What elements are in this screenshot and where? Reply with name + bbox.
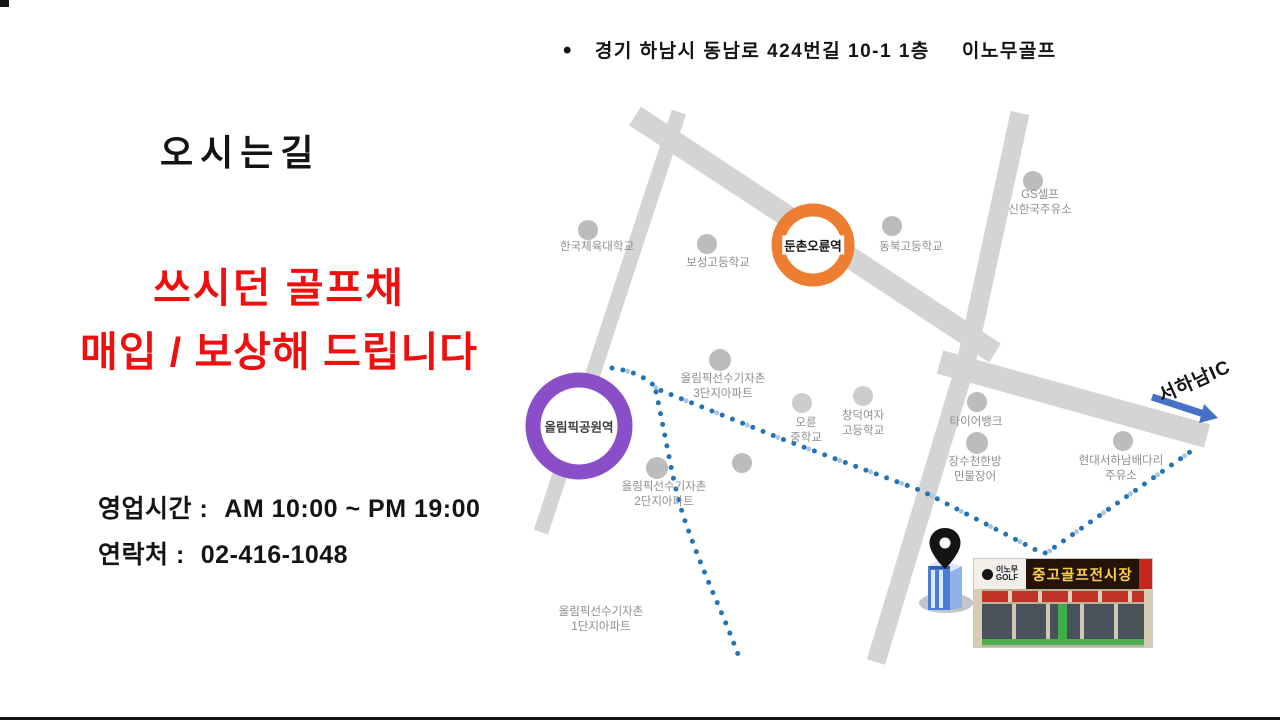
map-label-hankuk-univ: 한국체육대학교 <box>560 240 634 255</box>
sign-logo-panel: 이노무 GOLF <box>974 559 1026 589</box>
map-label-oryun-ms: 오륜 중학교 <box>790 416 822 446</box>
store-logo-icon <box>982 569 993 580</box>
poi-dot <box>1113 431 1133 451</box>
map-label-boseong-hs: 보성고등학교 <box>686 256 749 271</box>
poi-dot <box>853 386 873 406</box>
store-signboard: 이노무 GOLF 중고골프전시장 <box>974 559 1152 589</box>
map-label-2danji-apt: 올림픽선수기자촌 2단지아파트 <box>622 480 707 510</box>
storefront-photo: 이노무 GOLF 중고골프전시장 <box>974 559 1152 647</box>
sign-brand-line2: GOLF <box>996 574 1018 582</box>
station-label-dunchon-oryun: 둔촌오륜역 <box>782 236 844 255</box>
poi-dot <box>966 432 988 454</box>
poi-dot <box>792 393 812 413</box>
map-label-tirebank: 타이어뱅크 <box>950 415 1003 430</box>
sign-right-box <box>1139 559 1152 589</box>
map-label-dongbuk-hs: 동북고등학교 <box>879 240 942 255</box>
poi-dot <box>697 234 717 254</box>
map-label-3danji-apt: 올림픽선수기자촌 3단지아파트 <box>681 372 766 402</box>
map-label-changdeok-hs: 창덕여자 고등학교 <box>842 409 884 439</box>
slide-corner-mark <box>0 0 9 7</box>
poi-dot <box>578 220 598 240</box>
green-strip <box>982 639 1144 645</box>
map-label-hyundai-station: 현대서하남배다리 주유소 <box>1079 454 1164 484</box>
sign-main-text: 중고골프전시장 <box>1026 559 1139 589</box>
route-branch <box>656 392 739 657</box>
map-label-jangsu-restaurant: 장수천한방 민물장어 <box>949 455 1002 485</box>
poi-dot <box>646 457 668 479</box>
facade-pillar <box>974 589 982 647</box>
station-label-olympic-park: 올림픽공원역 <box>542 417 615 436</box>
map-label-1danji-apt: 올림픽선수기자촌 1단지아파트 <box>559 605 644 635</box>
store-facade <box>974 589 1152 647</box>
map-label-gs-station: GS셀프 신한국주유소 <box>1008 188 1071 218</box>
poi-dot <box>967 392 987 412</box>
poi-dot <box>732 453 752 473</box>
red-banners <box>982 591 1144 602</box>
green-banner <box>1058 604 1067 643</box>
poi-dot <box>709 349 731 371</box>
facade-pillar <box>1144 589 1152 647</box>
poi-dot <box>882 216 902 236</box>
sign-brand-text: 이노무 GOLF <box>996 566 1018 583</box>
